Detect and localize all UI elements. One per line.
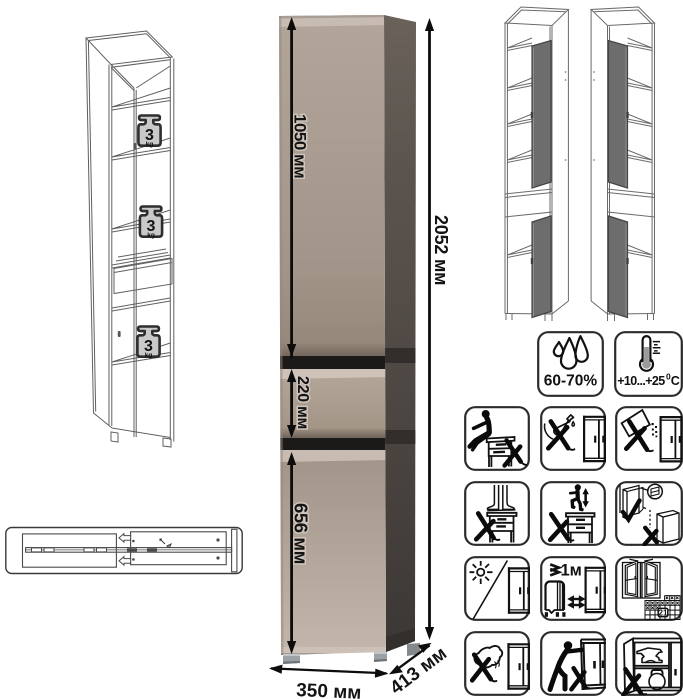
- svg-text:1050 мм: 1050 мм: [291, 114, 310, 178]
- svg-text:350 мм: 350 мм: [296, 680, 362, 700]
- svg-text:kg: kg: [146, 141, 154, 148]
- svg-text:1м: 1м: [561, 562, 582, 580]
- svg-text:21: 21: [659, 609, 668, 618]
- svg-text:2052 мм: 2052 мм: [431, 215, 451, 285]
- svg-text:60-70%: 60-70%: [544, 373, 598, 390]
- svg-text:C: C: [671, 374, 680, 388]
- svg-text:656 мм: 656 мм: [290, 503, 311, 564]
- svg-text:+10...+25: +10...+25: [617, 374, 665, 388]
- svg-text:220 мм: 220 мм: [294, 376, 311, 429]
